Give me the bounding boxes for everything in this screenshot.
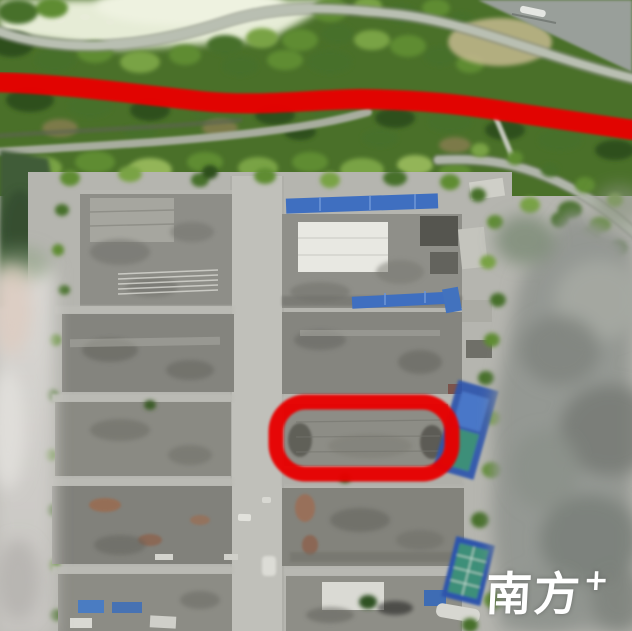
aerial-photo [0, 0, 632, 631]
white-rooftop [298, 222, 388, 272]
watermark-plus-glyph: + [583, 563, 612, 598]
blue-tarp [78, 600, 104, 613]
factory-compound [28, 165, 512, 631]
building-roof [52, 486, 232, 564]
building-roof [90, 198, 174, 242]
building-roof [55, 402, 231, 476]
rooftop-unit [420, 216, 458, 246]
building-roof [282, 312, 462, 394]
blue-tarp [112, 602, 142, 613]
blurred-region-left [0, 247, 54, 631]
watermark-nanfangplus: 南方+ [485, 566, 612, 617]
white-car [238, 514, 251, 521]
watermark-text: 南方 [484, 567, 583, 621]
white-car [262, 497, 271, 503]
aerial-photo-stage: 南方+ [0, 0, 632, 631]
